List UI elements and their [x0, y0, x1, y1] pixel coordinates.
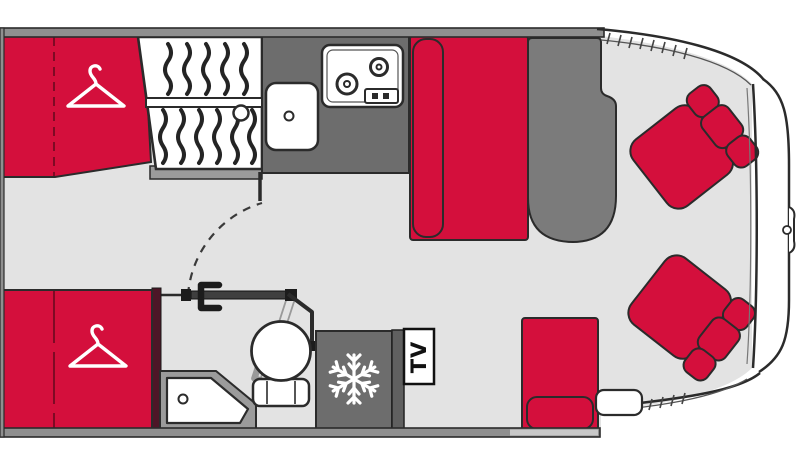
drain-icon — [285, 112, 294, 121]
seat-cushion — [527, 397, 593, 429]
toilet — [252, 322, 311, 407]
body-front-edge — [759, 79, 789, 372]
hob-controls — [365, 89, 398, 103]
fridge — [316, 331, 392, 430]
tv-label: TV — [407, 341, 431, 374]
floorplan-canvas: TV — [0, 0, 796, 466]
bench-backrest — [413, 39, 443, 237]
rear-wardrobe-bottom — [3, 290, 152, 430]
entry-door-wall-segment — [510, 430, 598, 436]
two-burner-hob — [322, 45, 403, 107]
dinette-bench — [410, 36, 528, 240]
drain-icon — [179, 395, 188, 404]
wall-rear — [0, 28, 4, 437]
kitchen-counter — [262, 33, 409, 173]
shower-cabinet — [138, 37, 262, 179]
motorhome-floorplan: TV — [0, 0, 796, 466]
toilet-bowl — [252, 322, 311, 381]
entry-step — [596, 390, 642, 415]
rear-wardrobe-top — [3, 36, 151, 177]
kitchen-sink — [266, 83, 318, 150]
drain-icon — [234, 106, 249, 121]
toilet-tank — [253, 379, 309, 406]
tv-partition — [392, 330, 404, 430]
wall-top — [0, 28, 604, 37]
windshield-frame — [753, 84, 757, 368]
side-seat — [522, 318, 598, 430]
